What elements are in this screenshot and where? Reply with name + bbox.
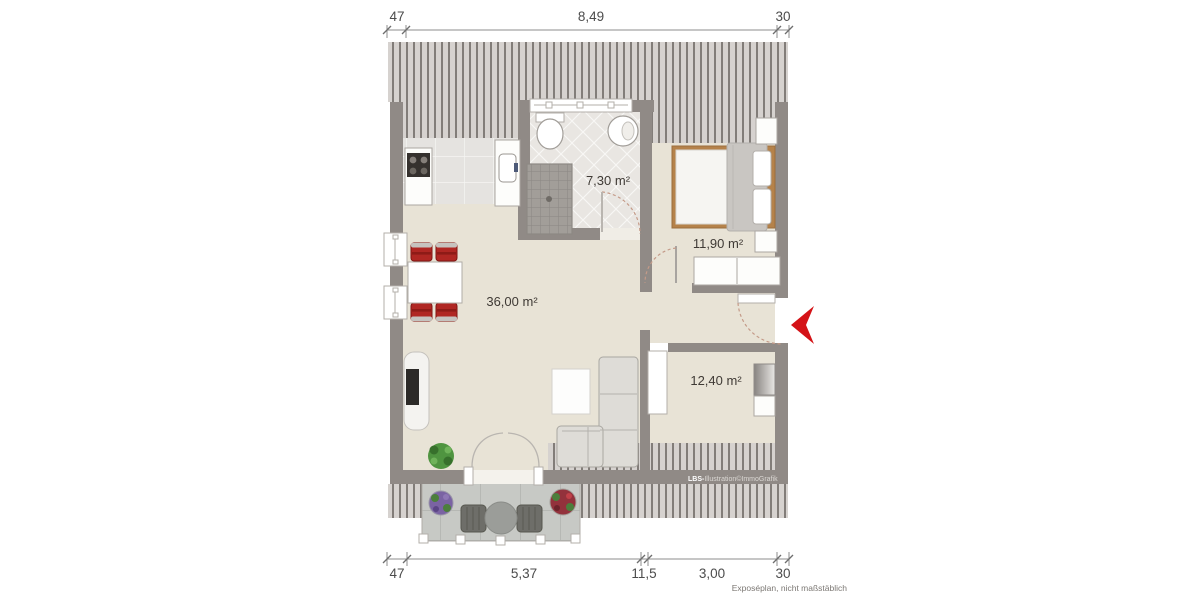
window-west-1 <box>384 233 407 266</box>
window-west-2 <box>384 286 407 319</box>
bed-pillow <box>753 189 771 224</box>
balcony-post <box>496 536 505 545</box>
bathroom-area-label: 7,30 m² <box>586 173 631 188</box>
floor-plan-drawing: 36,00 m² 7,30 m² 11,90 m² 12,40 m² 47 8,… <box>0 0 1200 600</box>
dim-bottom-30: 30 <box>775 566 790 581</box>
door-post <box>464 467 473 485</box>
shower-drain <box>546 196 552 202</box>
kitchen-sink <box>499 154 516 182</box>
bedroom-door-opening <box>652 283 692 293</box>
door-post <box>534 467 543 485</box>
bed-pillow <box>753 151 771 186</box>
dim-bottom-47: 47 <box>389 566 404 581</box>
nightstand <box>756 118 777 144</box>
dim-bottom-300: 3,00 <box>699 566 725 581</box>
balcony-chair-right <box>517 505 542 532</box>
roof-slope-kitchen <box>403 100 518 138</box>
stove-burner <box>421 168 428 175</box>
balcony-post <box>456 535 465 544</box>
room2-area-label: 12,40 m² <box>690 373 742 388</box>
balcony-post <box>571 534 580 543</box>
dining-chair <box>436 243 457 261</box>
dim-bottom-537: 5,37 <box>511 566 537 581</box>
balcony-post <box>419 534 428 543</box>
dining-table <box>408 262 462 303</box>
wall-bathroom-east <box>640 112 652 292</box>
window-bathroom <box>530 99 632 112</box>
flower-pot-left <box>429 491 453 515</box>
balcony-door-opening <box>467 470 540 484</box>
tv-screen <box>406 369 419 405</box>
dim-bottom-115: 11,5 <box>631 566 656 581</box>
stove-burner <box>410 157 417 164</box>
tv-unit <box>404 352 429 430</box>
entrance-arrow-icon <box>791 306 814 344</box>
dimension-chain-bottom: 47 5,37 11,5 3,00 30 Exposéplan, nicht m… <box>383 552 847 593</box>
dresser-room2 <box>754 364 775 395</box>
dimension-chain-top: 47 8,49 30 <box>383 9 793 38</box>
dining-chair <box>411 243 432 261</box>
toilet <box>537 119 563 149</box>
stove <box>407 153 430 177</box>
watermark: LBS-Illustration©ImmoGrafik <box>688 475 778 483</box>
entrance-door-opening <box>775 298 788 343</box>
sofa-long-section <box>599 357 638 467</box>
dining-chair <box>411 303 432 321</box>
dim-top-849: 8,49 <box>578 9 604 24</box>
indoor-plant <box>428 443 454 469</box>
dim-top-47: 47 <box>389 9 404 24</box>
stove-burner <box>410 168 417 175</box>
balcony-chair-left <box>461 505 486 532</box>
balcony-post <box>536 535 545 544</box>
wall-south-left <box>390 470 467 484</box>
stove-burner <box>421 157 428 164</box>
watermark-rest: Illustration©ImmoGrafik <box>704 475 778 483</box>
balcony <box>419 483 580 545</box>
bed-mattress <box>676 150 732 224</box>
entrance-door-leaf <box>738 294 775 303</box>
dresser-bedroom <box>755 231 777 252</box>
wall-east-lower <box>775 343 788 484</box>
floor-plan-page: 36,00 m² 7,30 m² 11,90 m² 12,40 m² 47 8,… <box>0 0 1200 600</box>
room2-door-leaf <box>648 351 667 414</box>
sink-faucet <box>514 163 518 172</box>
bedroom-area-label: 11,90 m² <box>693 236 744 251</box>
sink-basin <box>622 122 634 140</box>
dim-top-30: 30 <box>775 9 790 24</box>
cabinet-room2 <box>754 396 775 416</box>
wall-room2-north <box>668 343 775 352</box>
watermark-bold: LBS- <box>688 476 705 483</box>
rug <box>552 369 590 414</box>
dining-chair <box>436 303 457 321</box>
roof-hatch-top <box>388 42 788 102</box>
scale-disclaimer: Exposéplan, nicht maßstäblich <box>732 583 848 593</box>
living-room-area-label: 36,00 m² <box>486 294 538 309</box>
bathroom-door-opening <box>600 228 640 240</box>
sofa-short-section <box>557 426 603 467</box>
flower-pot-right <box>550 489 576 515</box>
balcony-table <box>485 502 517 534</box>
